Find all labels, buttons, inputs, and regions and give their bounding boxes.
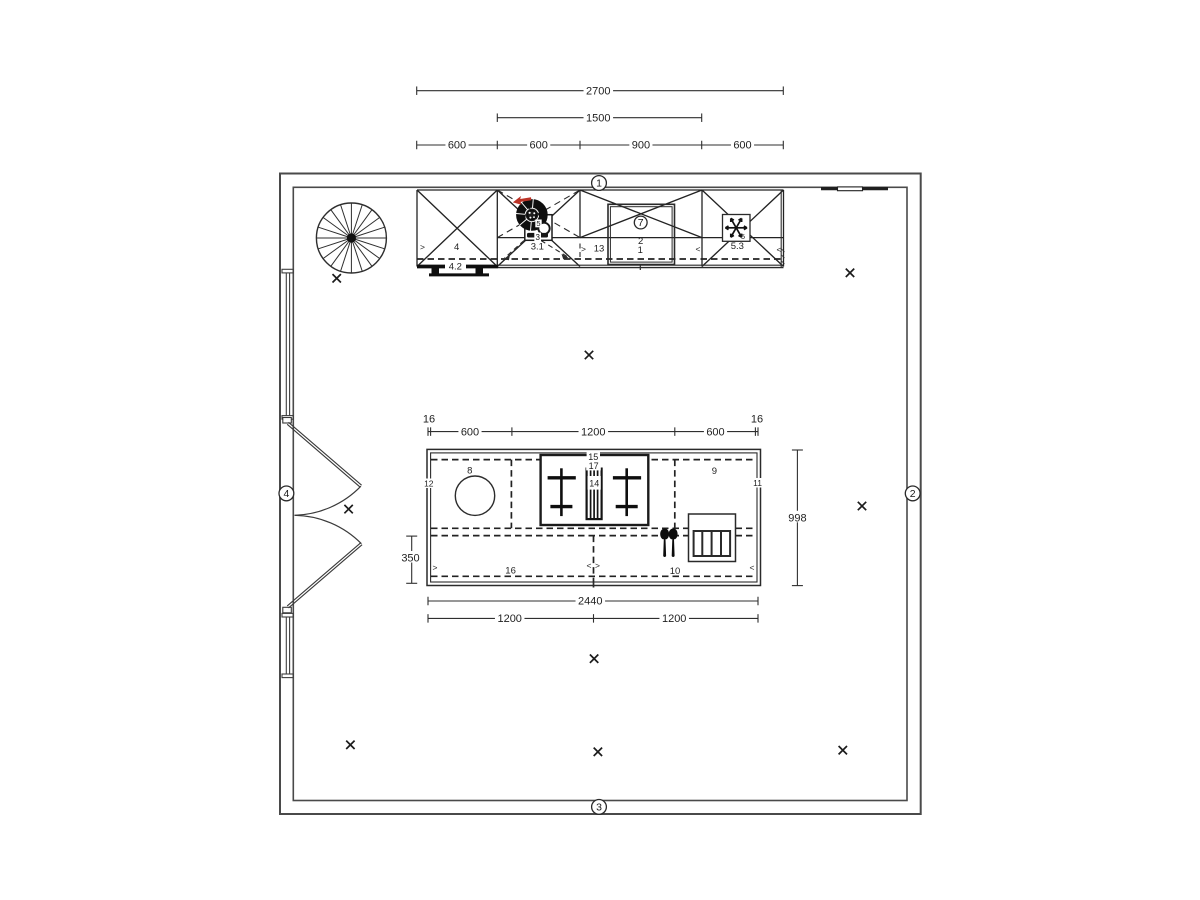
svg-text:14: 14 bbox=[589, 479, 599, 489]
svg-text:3: 3 bbox=[596, 802, 602, 814]
svg-text:>: > bbox=[433, 562, 438, 572]
svg-text:1: 1 bbox=[596, 178, 602, 190]
svg-text:>: > bbox=[420, 242, 425, 252]
svg-text:16: 16 bbox=[423, 414, 435, 426]
svg-text:10: 10 bbox=[670, 566, 681, 577]
svg-text:4: 4 bbox=[454, 242, 459, 253]
svg-text:5: 5 bbox=[536, 219, 540, 228]
svg-text:1500: 1500 bbox=[586, 112, 610, 124]
svg-text:>: > bbox=[581, 244, 586, 254]
svg-text:1200: 1200 bbox=[581, 426, 605, 438]
svg-text:3.1: 3.1 bbox=[531, 242, 544, 253]
svg-text:1200: 1200 bbox=[662, 613, 686, 625]
svg-text:600: 600 bbox=[448, 140, 466, 152]
svg-text:900: 900 bbox=[632, 140, 650, 152]
svg-text:16: 16 bbox=[751, 414, 763, 426]
svg-text:17: 17 bbox=[589, 461, 599, 471]
svg-text:1200: 1200 bbox=[497, 613, 521, 625]
svg-text:350: 350 bbox=[401, 553, 419, 565]
svg-text:5: 5 bbox=[741, 232, 745, 241]
svg-text:7: 7 bbox=[638, 217, 644, 229]
svg-text:<: < bbox=[696, 244, 701, 254]
svg-text:12: 12 bbox=[424, 479, 434, 489]
svg-text:600: 600 bbox=[706, 426, 724, 438]
svg-text:11: 11 bbox=[753, 478, 762, 488]
svg-text:5.3: 5.3 bbox=[731, 241, 744, 252]
svg-text:600: 600 bbox=[733, 140, 751, 152]
svg-text:1: 1 bbox=[638, 245, 643, 256]
svg-text:<: < bbox=[777, 245, 782, 255]
svg-text:>: > bbox=[595, 561, 600, 571]
svg-text:9: 9 bbox=[712, 466, 717, 477]
svg-text:600: 600 bbox=[530, 140, 548, 152]
svg-text:998: 998 bbox=[788, 512, 806, 524]
svg-text:2700: 2700 bbox=[586, 85, 610, 97]
svg-text:8: 8 bbox=[467, 466, 472, 477]
svg-text:<: < bbox=[587, 561, 592, 571]
svg-text:13: 13 bbox=[594, 244, 605, 255]
svg-text:4: 4 bbox=[283, 488, 289, 500]
svg-text:2440: 2440 bbox=[578, 596, 602, 608]
svg-text:<: < bbox=[750, 562, 755, 572]
svg-text:3: 3 bbox=[535, 233, 540, 242]
svg-text:600: 600 bbox=[461, 426, 479, 438]
svg-text:2: 2 bbox=[910, 488, 916, 500]
svg-text:16: 16 bbox=[505, 565, 516, 576]
svg-text:4.2: 4.2 bbox=[449, 262, 462, 273]
